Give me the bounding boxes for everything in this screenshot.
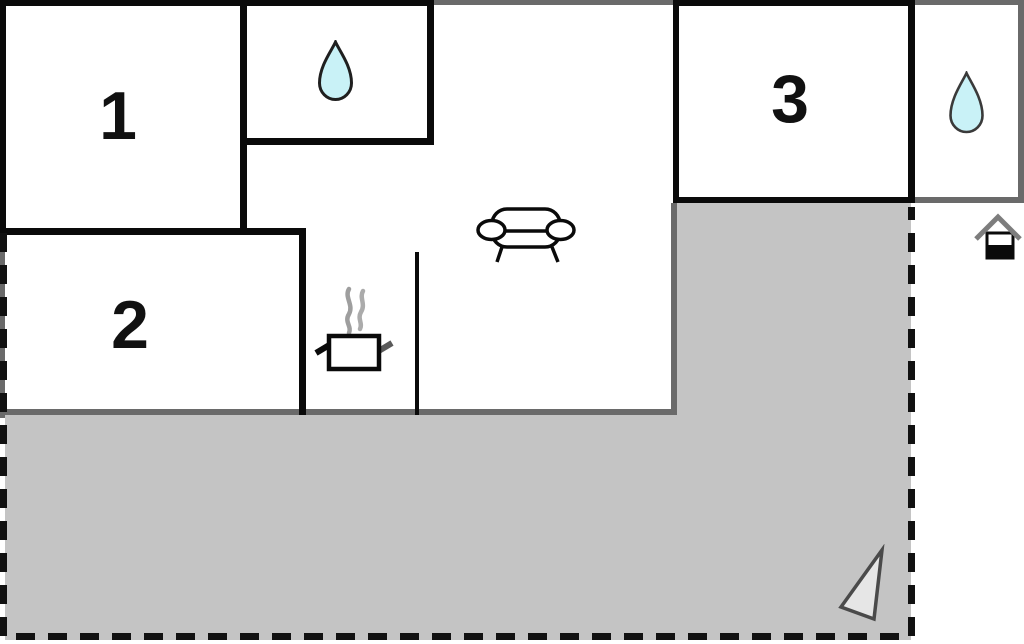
room-1-label: 1 [58, 76, 178, 156]
north-triangle-icon [836, 544, 888, 626]
floor-plan: 1 2 3 [0, 0, 1024, 644]
cooking-pot-icon [310, 284, 396, 374]
room-2-label: 2 [70, 285, 190, 365]
water-drop-icon [948, 71, 985, 134]
house-entrance-icon [972, 212, 1024, 262]
room-3-label: 3 [730, 59, 850, 139]
water-drop-icon [317, 40, 354, 101]
sofa-icon [470, 203, 580, 265]
